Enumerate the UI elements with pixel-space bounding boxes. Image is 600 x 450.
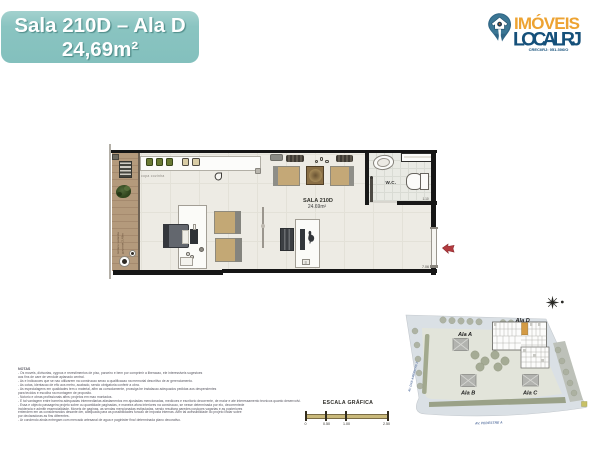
svg-text:CRECI/RJ: 051.306/O: CRECI/RJ: 051.306/O: [529, 47, 569, 52]
svg-text:Ala A: Ala A: [457, 332, 472, 338]
svg-text:Ala C: Ala C: [522, 391, 538, 397]
svg-text:AV. PEDESTRE A: AV. PEDESTRE A: [474, 421, 503, 426]
svg-text:Ala D: Ala D: [515, 318, 530, 324]
svg-text:Ala B: Ala B: [460, 391, 475, 397]
